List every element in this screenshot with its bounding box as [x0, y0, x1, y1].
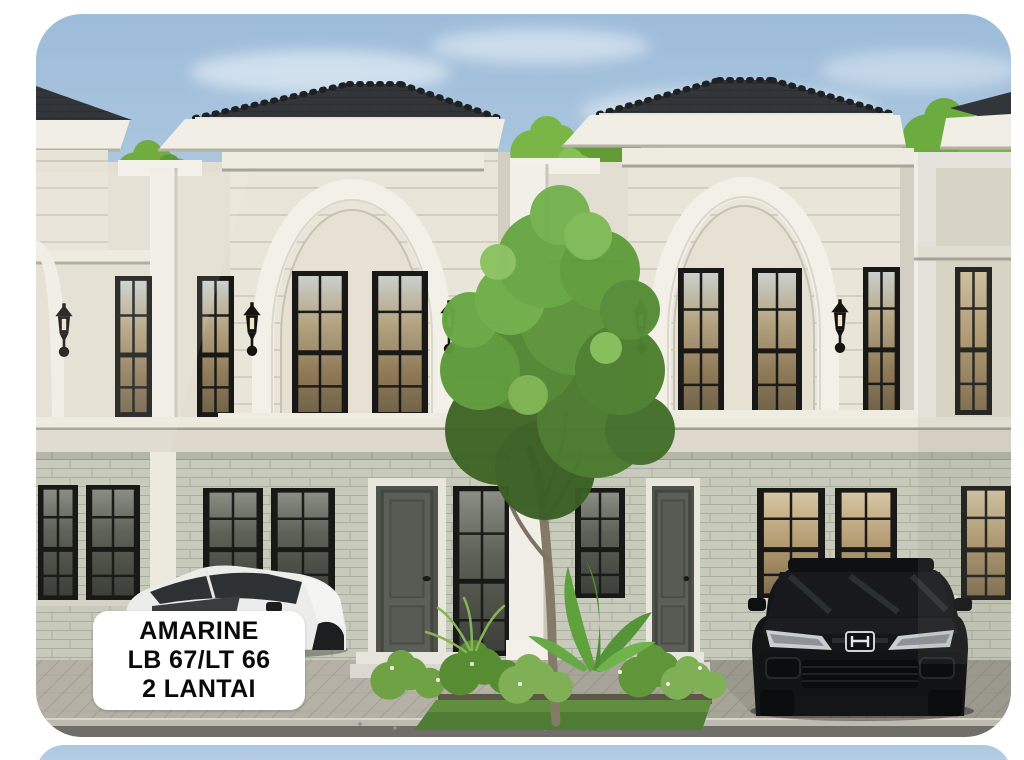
next-photo-card [36, 745, 1011, 760]
right-shade [918, 150, 1011, 664]
property-name-label: AMARINE [139, 617, 258, 646]
arched-window-unit-1 [263, 190, 441, 420]
building-land-size-label: LB 67/LT 66 [128, 646, 271, 675]
property-info-badge: AMARINE LB 67/LT 66 2 LANTAI [93, 611, 305, 710]
property-listing-photo: AMARINE LB 67/LT 66 2 LANTAI [0, 0, 1024, 760]
entry-door-unit-2 [652, 486, 694, 658]
floors-label: 2 LANTAI [142, 675, 256, 704]
arched-window-unit-2 [660, 188, 828, 420]
